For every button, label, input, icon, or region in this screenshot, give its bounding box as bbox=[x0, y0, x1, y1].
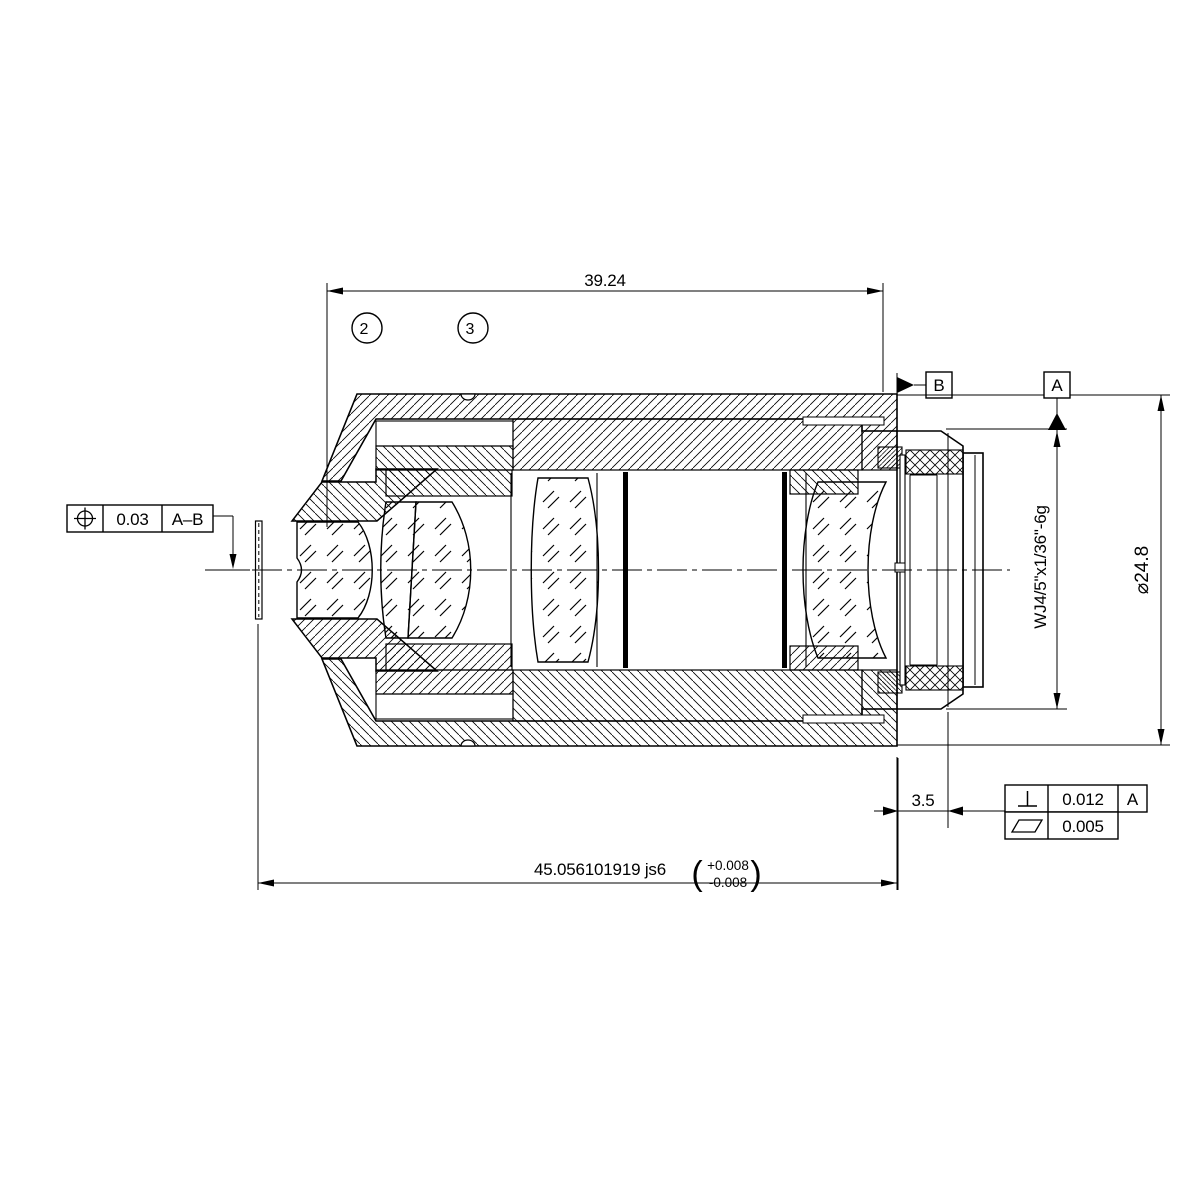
arrowhead bbox=[230, 554, 237, 569]
dim-overall-value: 45.056101919 js6 bbox=[534, 860, 666, 879]
dim-top-value: 39.24 bbox=[584, 271, 626, 290]
fcf-position-datums: A–B bbox=[172, 510, 204, 529]
fcf-flatness-tolerance: 0.005 bbox=[1062, 817, 1104, 836]
tolerance-plus: +0.008 bbox=[707, 858, 749, 873]
arrowhead bbox=[1158, 729, 1165, 745]
lens-mount-ring bbox=[386, 470, 512, 496]
fcf-position-tolerance: 0.03 bbox=[116, 510, 148, 529]
arrowhead bbox=[327, 288, 343, 295]
fcf-perp-tolerance: 0.012 bbox=[1062, 790, 1104, 809]
datum-b-flag: B bbox=[897, 372, 952, 398]
arrowhead bbox=[883, 807, 898, 816]
inner-barrel-wall bbox=[376, 446, 513, 470]
retainer-ring bbox=[878, 447, 902, 468]
arrowhead bbox=[1054, 431, 1061, 447]
fcf-perpendicularity-frame: 0.012 A bbox=[1005, 785, 1147, 812]
annotations: 39.24 2 3 0.03 A–B bbox=[67, 271, 1170, 893]
balloon-3-label: 3 bbox=[466, 321, 475, 338]
tolerance-paren-close: ) bbox=[750, 855, 761, 893]
arrowhead bbox=[1054, 693, 1061, 709]
balloon-2: 2 bbox=[352, 313, 382, 343]
datum-a-label: A bbox=[1051, 376, 1063, 395]
tolerance-paren-open: ( bbox=[691, 855, 703, 893]
thread-callout: WJ4/5"x1/36"-6g bbox=[1031, 505, 1050, 628]
fcf-flatness-frame: 0.005 bbox=[1005, 812, 1118, 839]
arrowhead bbox=[1158, 395, 1165, 411]
arrowhead bbox=[867, 288, 883, 295]
tolerance-minus: -0.008 bbox=[709, 875, 747, 890]
datum-a-flag: A bbox=[1044, 372, 1070, 430]
dimension-diameter: ⌀24.8 bbox=[1132, 395, 1165, 745]
barrel-slot bbox=[803, 417, 884, 425]
inner-barrel-wall bbox=[513, 419, 862, 470]
arrowhead bbox=[881, 880, 897, 887]
balloon-2-label: 2 bbox=[360, 321, 369, 338]
arrowhead bbox=[948, 807, 963, 816]
knurl-band-bottom bbox=[906, 666, 963, 690]
balloon-3: 3 bbox=[458, 313, 488, 343]
datum-triangle-icon bbox=[897, 377, 914, 393]
barrel-groove bbox=[376, 421, 513, 446]
engineering-drawing-page: 39.24 2 3 0.03 A–B bbox=[0, 0, 1200, 1200]
fcf-perp-datum: A bbox=[1127, 790, 1139, 809]
fcf-position-frame: 0.03 A–B bbox=[67, 505, 250, 570]
dim-diameter-value: ⌀24.8 bbox=[1132, 546, 1153, 594]
datum-b-label: B bbox=[933, 376, 944, 395]
arrowhead bbox=[258, 880, 274, 887]
datum-triangle-icon bbox=[1048, 413, 1066, 430]
dim-rear-value: 3.5 bbox=[911, 791, 934, 810]
lens-assembly-drawing: 39.24 2 3 0.03 A–B bbox=[0, 0, 1200, 1200]
knurl-band-top bbox=[906, 450, 963, 474]
